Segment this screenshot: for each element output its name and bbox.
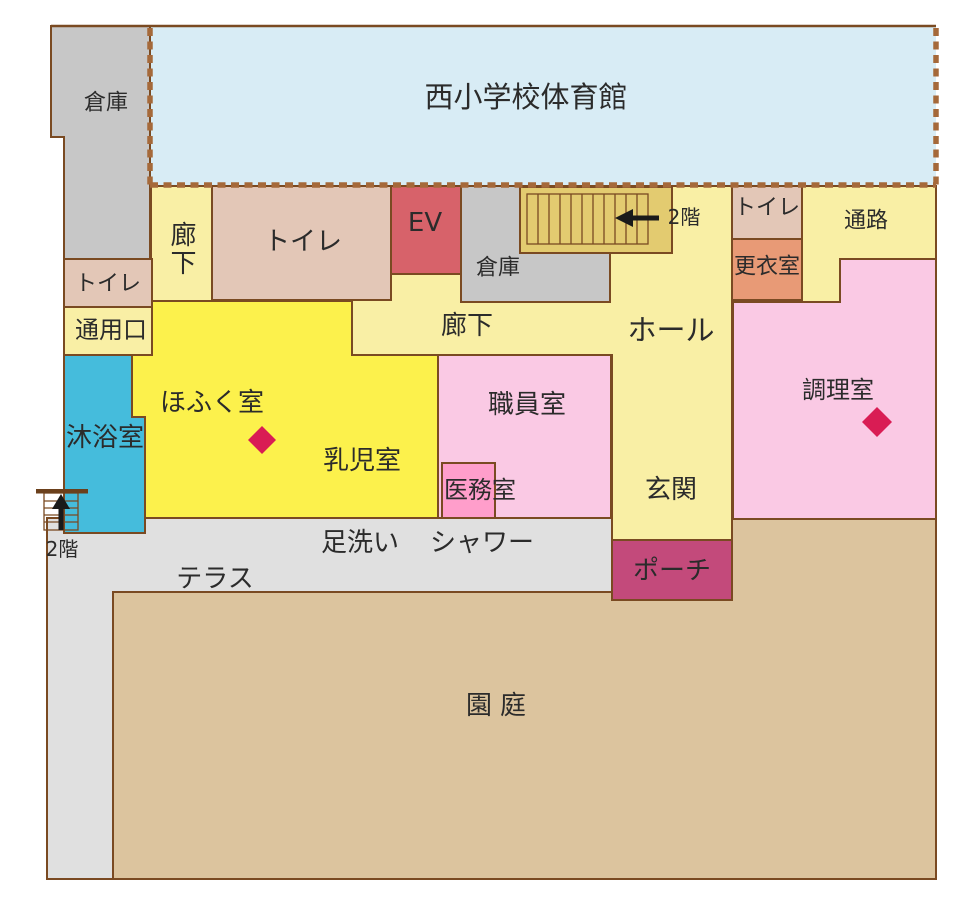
floor-plan: 西小学校体育館 倉庫 足洗い シャワー テラス 園庭 廊下 ホール 玄関 ほふく… [0, 0, 976, 907]
room-corridor-main-label: 廊下 [441, 311, 493, 341]
room-kitchen-label: 調理室 [802, 376, 874, 404]
room-toilet-left: トイレ [64, 259, 152, 307]
room-storage-top-label: 倉庫 [84, 91, 128, 116]
room-corridor-top: 廊下 [151, 186, 212, 301]
shower-label: シャワー [430, 528, 534, 558]
room-garden-label: 園庭 [466, 691, 534, 721]
room-toilet-right-label: トイレ [734, 196, 800, 221]
room-terrace-label: テラス [176, 564, 253, 594]
room-storage-mid-label: 倉庫 [476, 256, 520, 281]
room-porch-label: ポーチ [633, 556, 711, 586]
stairs-bottom-label: 2階 [46, 537, 79, 561]
room-bathing-label: 沐浴室 [66, 423, 144, 453]
room-toilet-left-label: トイレ [75, 272, 141, 297]
room-corridor-top-label: 廊下 [166, 221, 196, 277]
foot-wash-label: 足洗い [321, 528, 399, 558]
room-ev: EV [391, 186, 461, 274]
stairs-top-label: 2階 [668, 205, 701, 229]
room-gym-label: 西小学校体育館 [424, 80, 627, 114]
room-toilet-top: トイレ [212, 186, 391, 300]
room-service-entrance-label: 通用口 [75, 316, 147, 344]
room-gym: 西小学校体育館 [150, 26, 936, 185]
room-storage-top: 倉庫 [51, 26, 150, 259]
room-storage-top-shape [51, 26, 150, 259]
room-hall-label: ホール [627, 313, 714, 347]
room-toilet-right: トイレ [732, 186, 802, 239]
room-ev-label: EV [408, 208, 442, 238]
room-changing-label: 更衣室 [734, 255, 800, 280]
room-porch: ポーチ [612, 540, 732, 600]
room-medical-label: 医務室 [444, 476, 516, 504]
stairs-bottom-capbar [36, 489, 88, 494]
room-bathing: 沐浴室 [64, 355, 145, 533]
room-staff-label: 職員室 [488, 390, 566, 420]
room-service-entrance: 通用口 [64, 307, 152, 355]
room-crawling-label: ほふく室 [160, 388, 264, 418]
room-infant-label: 乳児室 [323, 446, 401, 476]
floor-plan-canvas: 西小学校体育館 倉庫 足洗い シャワー テラス 園庭 廊下 ホール 玄関 ほふく… [0, 0, 976, 907]
room-passage-label: 通路 [844, 209, 888, 234]
room-entrance-label: 玄関 [645, 475, 697, 505]
room-changing: 更衣室 [732, 239, 802, 300]
room-toilet-top-label: トイレ [264, 227, 342, 257]
